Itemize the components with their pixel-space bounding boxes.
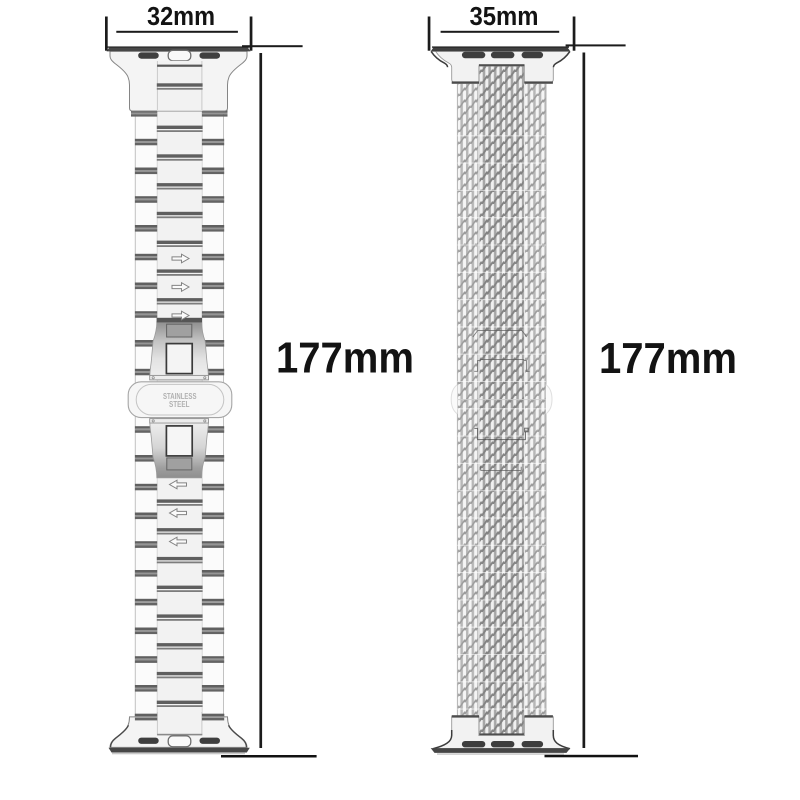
svg-text:177mm: 177mm [276,335,414,383]
svg-text:32mm: 32mm [147,3,215,31]
svg-text:STEEL: STEEL [169,400,190,409]
svg-text:177mm: 177mm [599,335,737,383]
svg-text:35mm: 35mm [470,3,539,31]
